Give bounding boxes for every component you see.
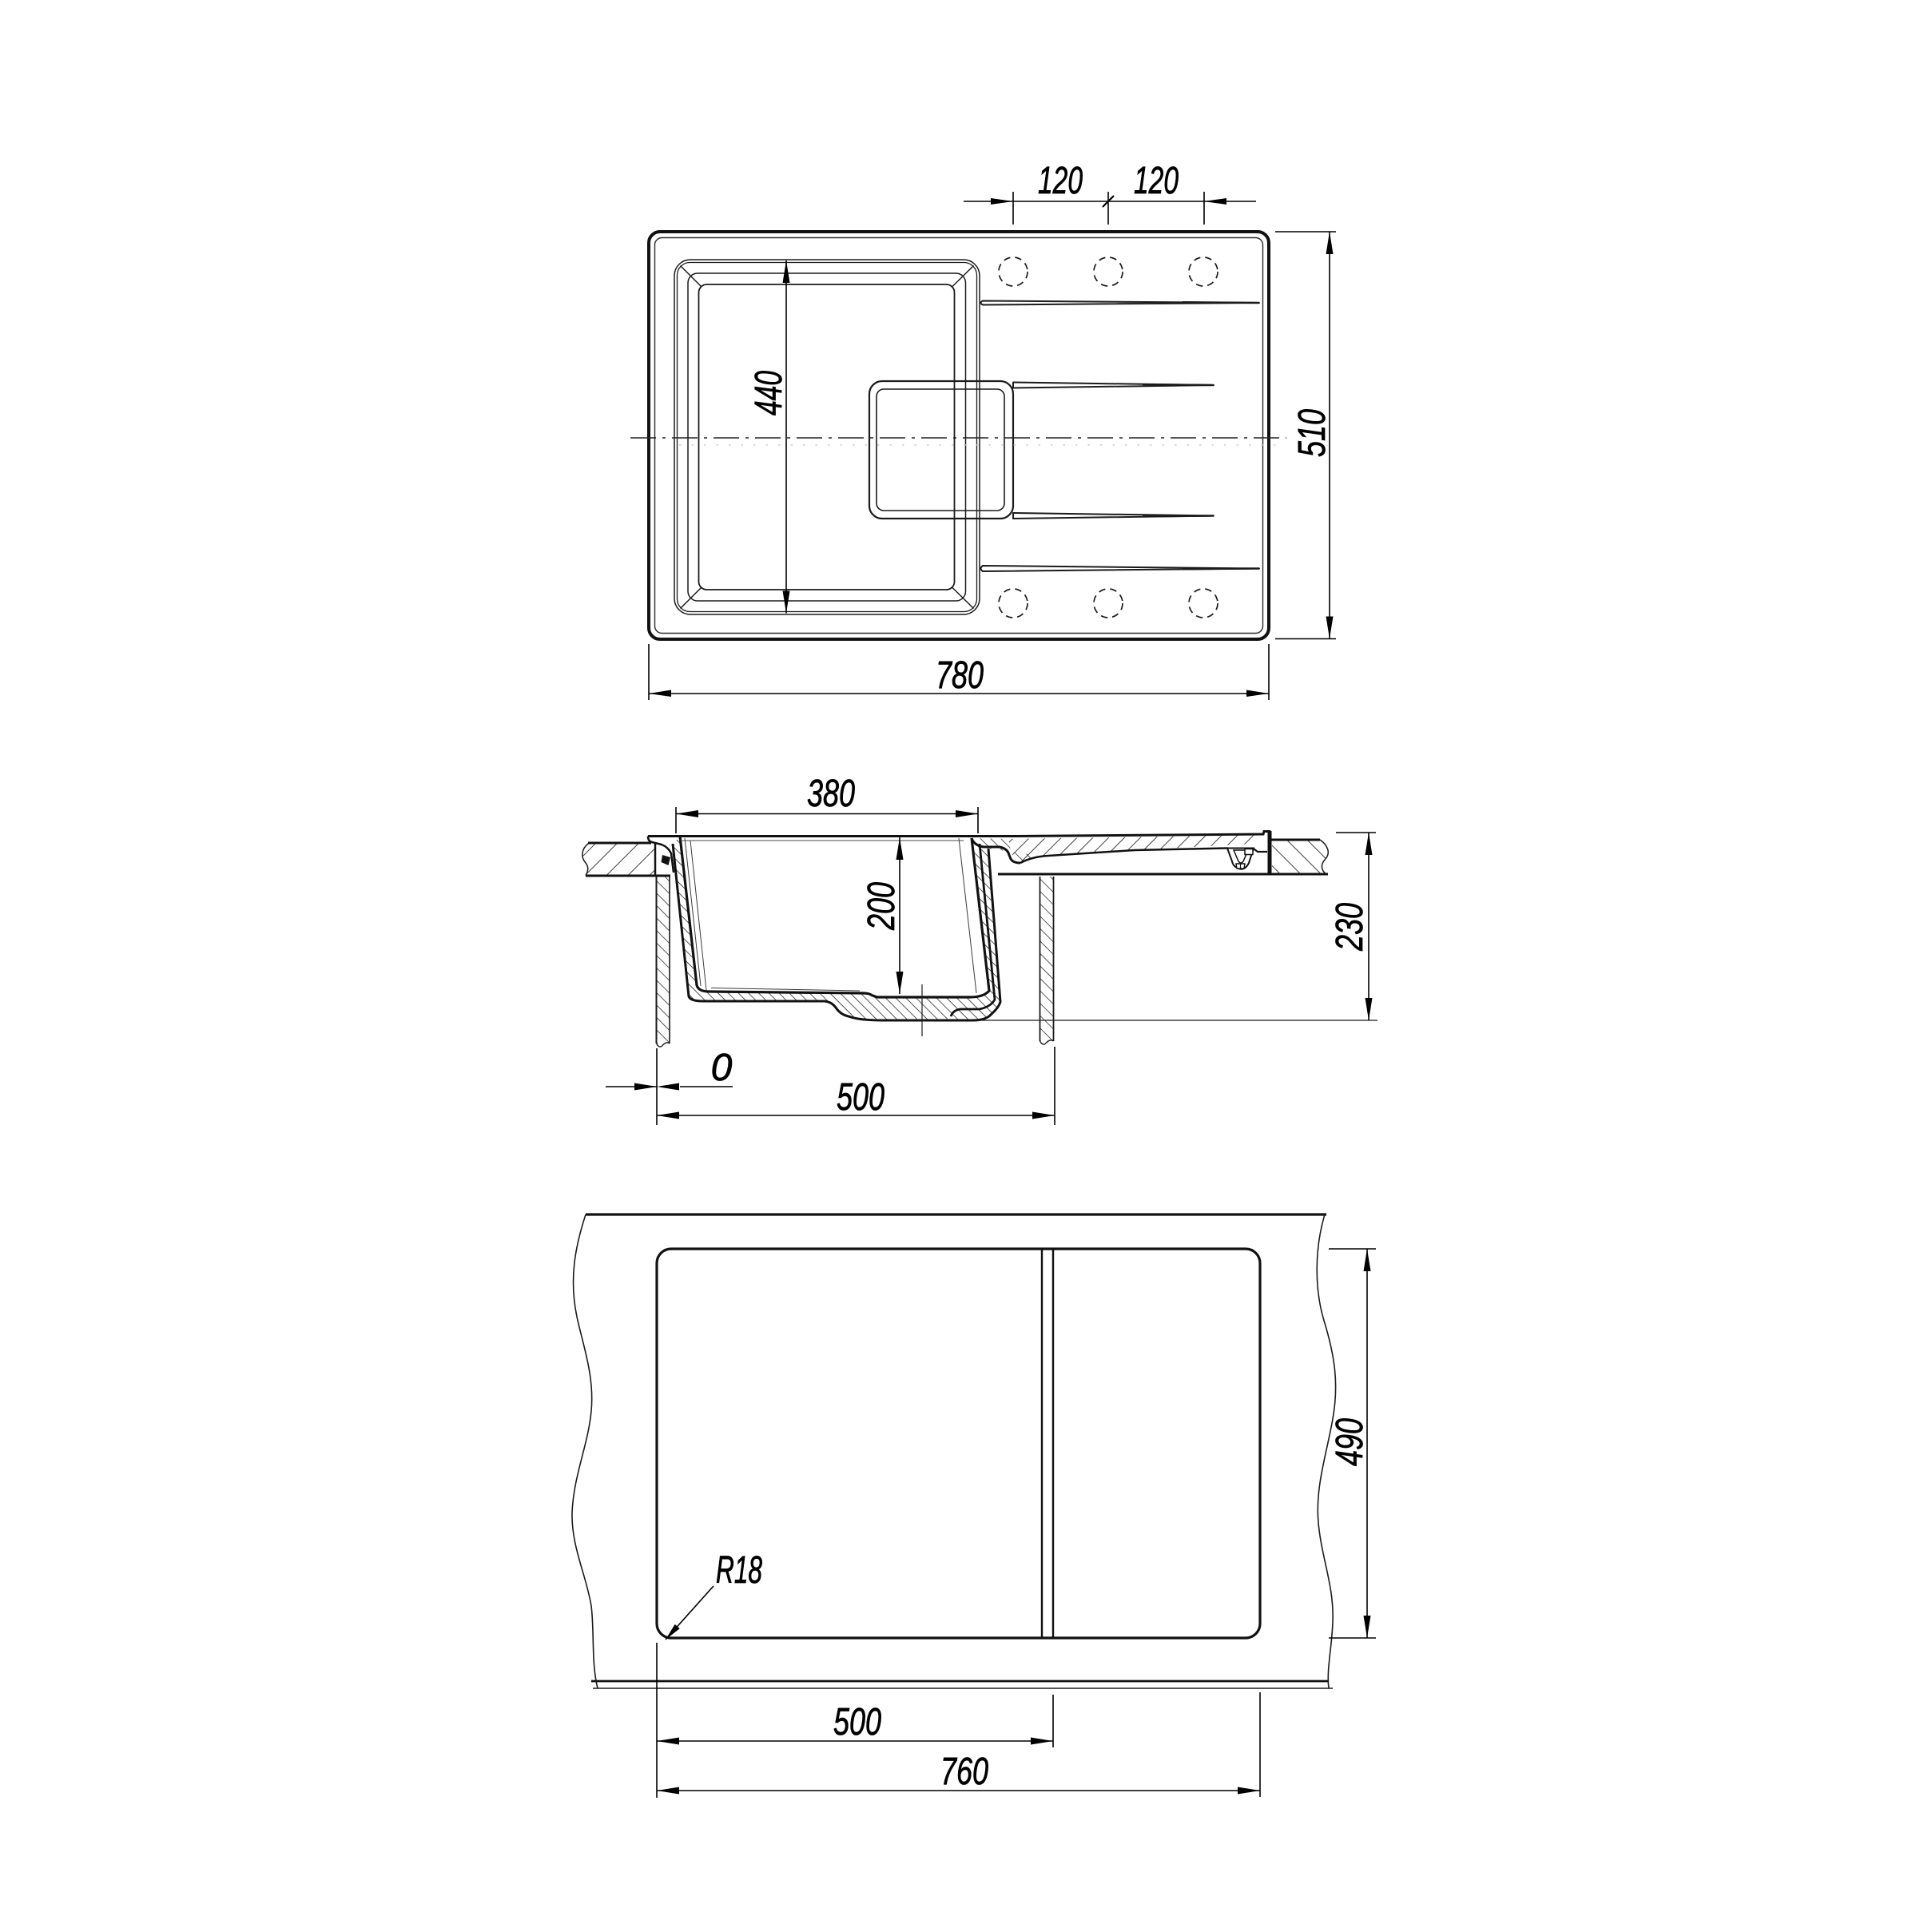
svg-text:500: 500 (837, 1076, 885, 1119)
svg-text:R18: R18 (716, 1549, 762, 1592)
svg-text:380: 380 (807, 773, 855, 815)
svg-text:120: 120 (1038, 160, 1083, 202)
svg-text:230: 230 (1329, 903, 1371, 952)
svg-text:760: 760 (940, 1751, 988, 1793)
svg-text:440: 440 (748, 371, 790, 415)
svg-text:490: 490 (1329, 1418, 1371, 1466)
svg-text:200: 200 (861, 882, 903, 931)
svg-text:510: 510 (1291, 409, 1334, 457)
svg-text:120: 120 (1134, 160, 1179, 202)
svg-text:780: 780 (936, 654, 984, 697)
svg-text:500: 500 (833, 1701, 881, 1743)
svg-text:0: 0 (711, 1047, 733, 1089)
